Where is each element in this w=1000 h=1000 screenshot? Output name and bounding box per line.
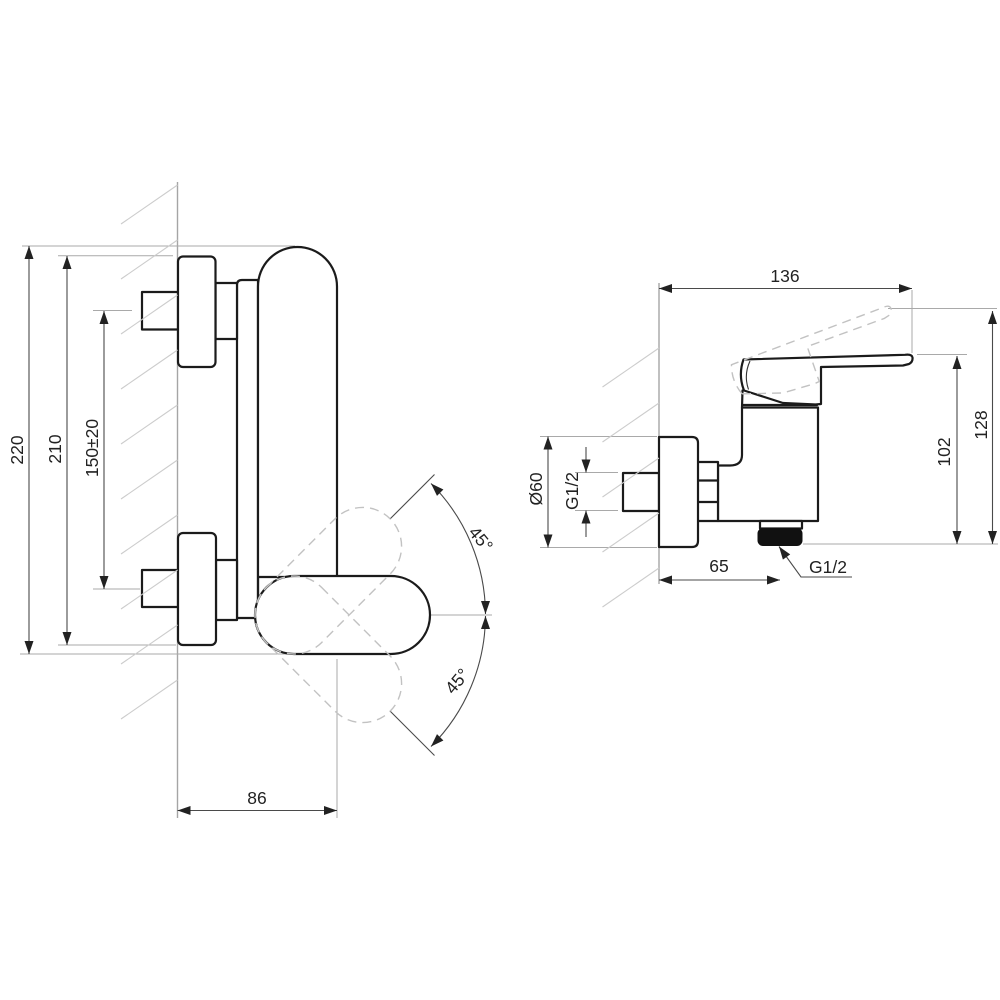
- dim-label-210: 210: [45, 434, 65, 463]
- dim-label-inlet-thread: G1/2: [562, 472, 582, 510]
- escutcheon-top: [178, 257, 216, 368]
- outlet-nut: [758, 529, 802, 546]
- mounting-plate: [237, 280, 258, 618]
- dim-label-outlet-thread: G1/2: [809, 557, 847, 577]
- dim-label-65: 65: [709, 556, 728, 576]
- mixer-side-geometry: [623, 305, 913, 547]
- dim-label-45-up: 45°: [465, 523, 497, 556]
- dim-label-d60: Ø60: [526, 472, 546, 505]
- mixer-front-geometry: [142, 247, 430, 739]
- mixer-body-front: [258, 247, 337, 619]
- inlet-pipe-top: [142, 292, 178, 330]
- inlet-connector-side: [698, 462, 719, 521]
- technical-drawing: 220 210 150±20 86 45° 45°: [0, 0, 1000, 1000]
- dim-label-102: 102: [934, 437, 954, 466]
- lever-front: [255, 576, 430, 654]
- dim-label-150: 150±20: [82, 419, 102, 478]
- escutcheon-bottom: [178, 533, 216, 645]
- escutcheon-side: [659, 437, 698, 547]
- front-view: 220 210 150±20 86 45° 45°: [7, 182, 497, 818]
- lever-side: [741, 355, 913, 405]
- dim-label-86: 86: [247, 788, 266, 808]
- drawing-page: 220 210 150±20 86 45° 45°: [0, 0, 1000, 1000]
- side-view: 136 128 102 Ø60 G1/2 65 G1/2: [526, 266, 998, 607]
- mixer-body-side: [718, 408, 818, 522]
- inlet-connector-bottom: [216, 560, 237, 620]
- dim-label-136: 136: [770, 266, 799, 286]
- wall-hatching-front: [121, 185, 178, 719]
- outlet-collar: [760, 521, 802, 529]
- dim-label-128: 128: [971, 410, 991, 439]
- dim-label-220: 220: [7, 435, 27, 464]
- inlet-connector-top: [216, 283, 238, 339]
- inlet-pipe-bottom: [142, 570, 178, 607]
